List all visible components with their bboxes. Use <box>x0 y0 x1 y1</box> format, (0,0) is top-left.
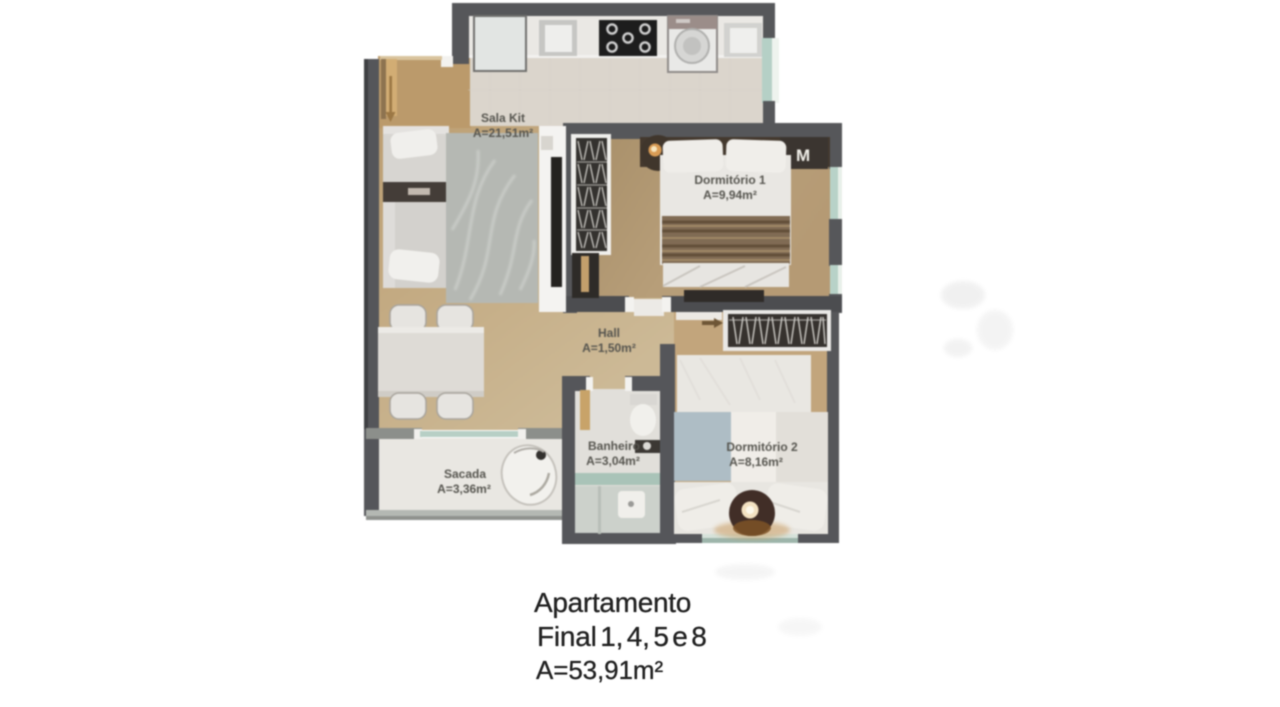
svg-text:A=3,36m²: A=3,36m² <box>437 482 491 496</box>
svg-text:M: M <box>796 146 810 165</box>
svg-text:Sacada: Sacada <box>444 467 486 481</box>
svg-text:A=21,51m²: A=21,51m² <box>473 126 533 140</box>
svg-text:A=9,94m²: A=9,94m² <box>703 188 757 202</box>
svg-text:A=8,16m²: A=8,16m² <box>729 455 783 469</box>
svg-text:A=3,04m²: A=3,04m² <box>586 454 640 468</box>
svg-text:Dormitório 2: Dormitório 2 <box>726 440 798 454</box>
svg-text:Dormitório 1: Dormitório 1 <box>694 173 766 187</box>
svg-text:A=1,50m²: A=1,50m² <box>582 341 636 355</box>
svg-text:Banheiro: Banheiro <box>588 439 640 453</box>
svg-text:Hall: Hall <box>598 326 620 340</box>
svg-text:Sala Kit: Sala Kit <box>481 111 525 125</box>
